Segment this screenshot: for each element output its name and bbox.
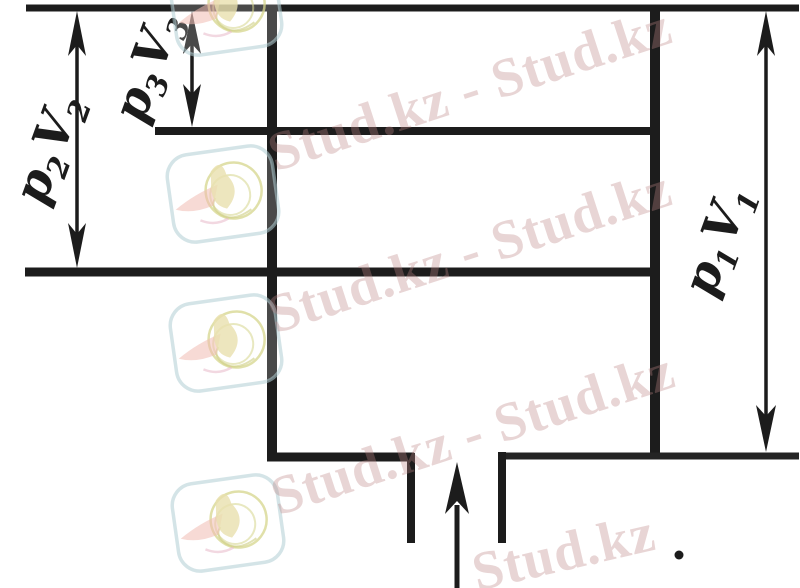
ink-dot bbox=[675, 551, 684, 560]
inlet-flow-arrow-icon bbox=[445, 462, 469, 588]
scanned-diagram-page: p2V2 p3V3 p1V1 Stud.kz - Stud.kz Stud.kz… bbox=[0, 0, 800, 588]
dimension-arrow-p1v1 bbox=[756, 11, 776, 452]
